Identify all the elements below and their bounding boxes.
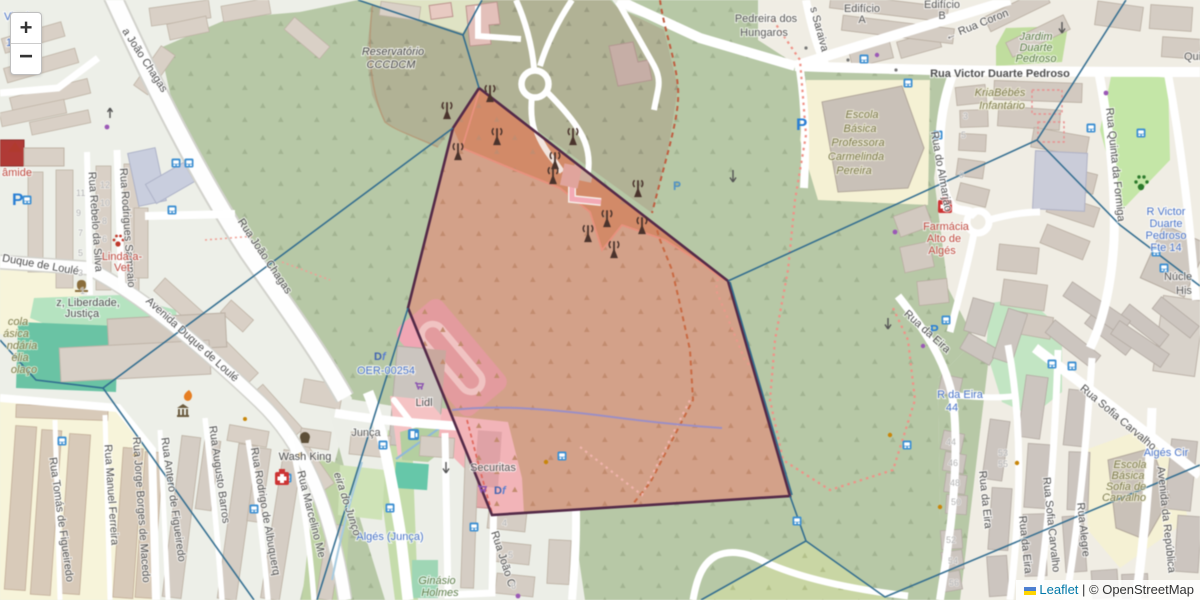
svg-text:R Victor: R Victor bbox=[1147, 206, 1186, 218]
svg-text:Hungaros: Hungaros bbox=[740, 27, 788, 39]
svg-text:Duarte: Duarte bbox=[1149, 218, 1182, 230]
svg-text:ndária: ndária bbox=[7, 340, 38, 352]
svg-text:Fte 14: Fte 14 bbox=[1150, 242, 1181, 254]
svg-text:Professora: Professora bbox=[831, 137, 884, 149]
svg-text:Pereira: Pereira bbox=[836, 165, 871, 177]
svg-text:6: 6 bbox=[102, 234, 107, 244]
svg-text:54: 54 bbox=[948, 556, 958, 566]
svg-text:A: A bbox=[858, 14, 866, 26]
svg-text:56: 56 bbox=[949, 578, 959, 588]
svg-text:âmide: âmide bbox=[2, 167, 32, 179]
svg-text:P: P bbox=[12, 190, 23, 209]
svg-text:Wash King: Wash King bbox=[279, 451, 332, 463]
svg-text:9: 9 bbox=[76, 208, 81, 218]
svg-text:9: 9 bbox=[959, 170, 964, 180]
svg-text:3: 3 bbox=[78, 268, 83, 278]
svg-text:11: 11 bbox=[76, 188, 85, 198]
svg-text:P: P bbox=[673, 179, 681, 193]
svg-text:B: B bbox=[938, 10, 945, 22]
svg-text:Df: Df bbox=[494, 485, 507, 497]
svg-text:Alto de: Alto de bbox=[927, 233, 961, 245]
svg-text:Rua Victor Duarte Pedroso: Rua Victor Duarte Pedroso bbox=[930, 68, 1070, 80]
svg-text:4: 4 bbox=[502, 518, 507, 528]
svg-text:Básica: Básica bbox=[843, 123, 876, 135]
svg-text:Núcle: Núcle bbox=[1164, 271, 1192, 283]
svg-text:53: 53 bbox=[998, 448, 1008, 458]
svg-text:Algés: Algés bbox=[928, 245, 956, 257]
svg-text:élia: élia bbox=[11, 352, 28, 364]
svg-text:46: 46 bbox=[948, 458, 958, 468]
svg-text:Quin: Quin bbox=[1184, 51, 1200, 63]
svg-text:Pedreira dos: Pedreira dos bbox=[735, 13, 798, 25]
svg-text:50: 50 bbox=[951, 497, 961, 507]
svg-text:Pedroso: Pedroso bbox=[1016, 53, 1057, 65]
svg-text:10: 10 bbox=[100, 198, 110, 208]
svg-text:6: 6 bbox=[511, 581, 516, 591]
svg-text:Algés (Junça): Algés (Junça) bbox=[356, 531, 423, 543]
svg-text:P: P bbox=[796, 115, 807, 134]
svg-text:KriaBébés: KriaBébés bbox=[975, 87, 1026, 99]
svg-text:OER-00254: OER-00254 bbox=[357, 365, 415, 377]
svg-text:R da Eira: R da Eira bbox=[937, 389, 984, 401]
svg-text:Df: Df bbox=[374, 351, 387, 363]
svg-text:Infantário: Infantário bbox=[979, 100, 1025, 112]
svg-text:1: 1 bbox=[80, 286, 85, 296]
svg-text:His: His bbox=[1176, 285, 1192, 297]
svg-text:Holmes: Holmes bbox=[421, 587, 459, 599]
svg-text:Carvalho: Carvalho bbox=[1102, 492, 1146, 504]
svg-text:5: 5 bbox=[508, 550, 513, 560]
svg-text:Justiça: Justiça bbox=[65, 308, 100, 320]
svg-text:Junça: Junça bbox=[351, 427, 381, 439]
svg-text:ásica: ásica bbox=[3, 328, 29, 340]
svg-text:Securitas: Securitas bbox=[470, 462, 516, 474]
svg-text:CCCDCM: CCCDCM bbox=[367, 59, 417, 71]
svg-text:olaço: olaço bbox=[11, 364, 37, 376]
svg-text:8: 8 bbox=[102, 216, 107, 226]
svg-text:7: 7 bbox=[78, 228, 83, 238]
svg-text:Carmelinda: Carmelinda bbox=[828, 151, 884, 163]
svg-text:48: 48 bbox=[950, 478, 960, 488]
svg-text:Escola: Escola bbox=[845, 109, 878, 121]
svg-text:5: 5 bbox=[961, 130, 966, 140]
svg-text:Vet: Vet bbox=[114, 262, 130, 274]
svg-text:44: 44 bbox=[946, 437, 956, 447]
svg-text:Reservatório: Reservatório bbox=[362, 46, 424, 58]
svg-text:52: 52 bbox=[946, 535, 956, 545]
svg-text:12: 12 bbox=[100, 180, 110, 190]
svg-text:3: 3 bbox=[963, 111, 968, 121]
svg-text:44: 44 bbox=[946, 402, 958, 414]
svg-text:55: 55 bbox=[998, 459, 1008, 469]
svg-text:Lidl: Lidl bbox=[415, 397, 432, 409]
svg-text:cola: cola bbox=[8, 316, 28, 328]
svg-text:Farmácia: Farmácia bbox=[923, 221, 970, 233]
svg-text:Ginásio: Ginásio bbox=[418, 575, 455, 587]
svg-text:Pedroso: Pedroso bbox=[1146, 230, 1187, 242]
svg-text:5: 5 bbox=[78, 248, 83, 258]
